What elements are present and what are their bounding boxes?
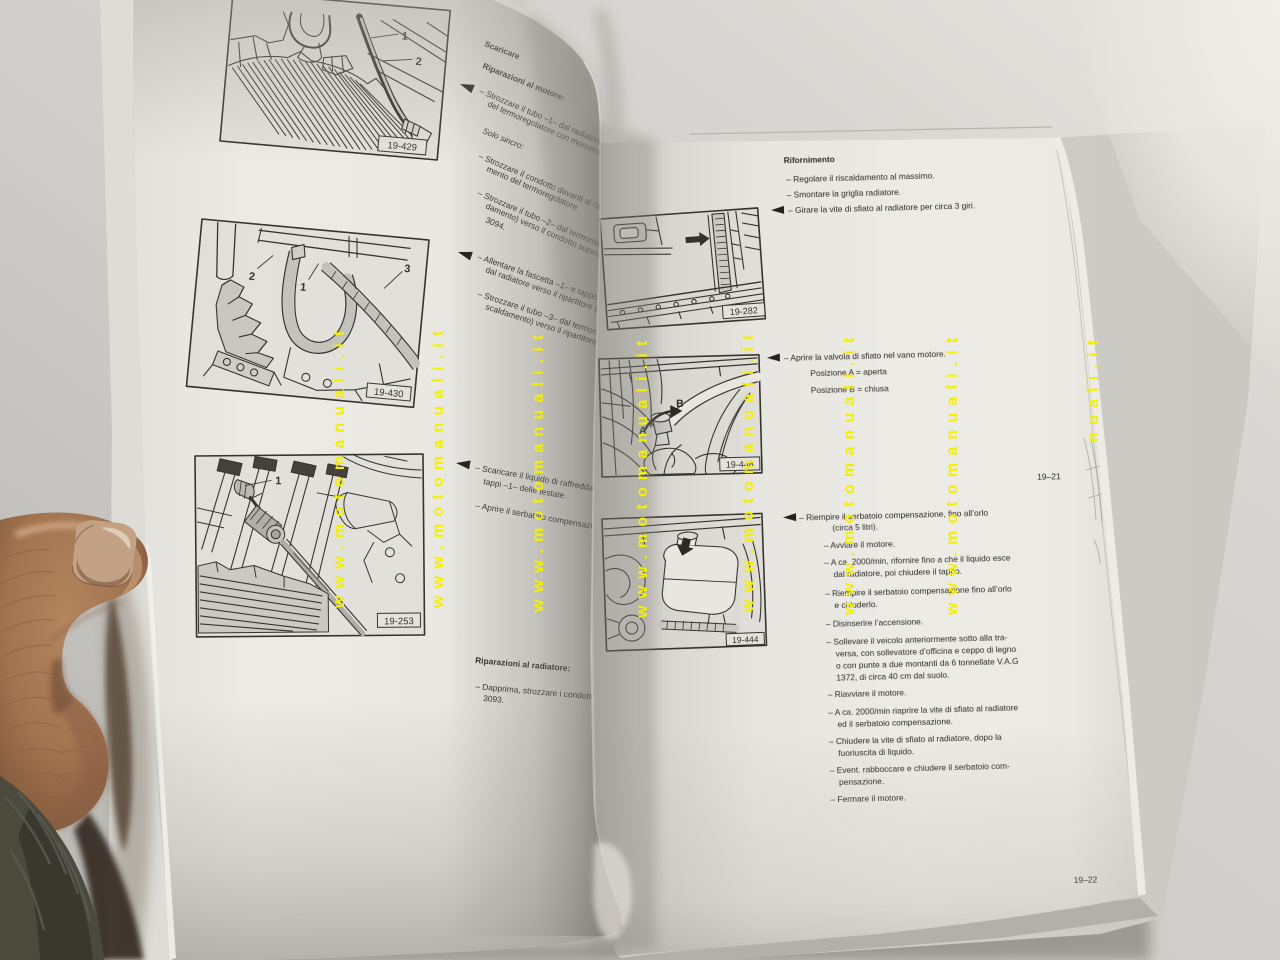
svg-text:www.motomanuali.it: www.motomanuali.it (430, 323, 447, 609)
svg-text:Rifornimento: Rifornimento (784, 155, 835, 165)
svg-text:www.motomanuali.it: www.motomanuali.it (740, 327, 757, 613)
svg-text:19-444: 19-444 (732, 634, 759, 645)
svg-text:www.motomanuali.it: www.motomanuali.it (944, 330, 961, 616)
svg-text:www.motomanuali.it: www.motomanuali.it (331, 323, 348, 609)
svg-text:2: 2 (248, 271, 255, 284)
svg-text:B: B (676, 398, 684, 410)
svg-text:www.motomanuali.it: www.motomanuali.it (530, 327, 547, 613)
svg-text:www.motomanuali.it: www.motomanuali.it (634, 333, 651, 619)
svg-text:nuali.it: nuali.it (1085, 333, 1102, 442)
svg-text:www.motomanuali.it: www.motomanuali.it (841, 330, 858, 616)
svg-text:19–21: 19–21 (1037, 471, 1061, 482)
svg-text:19-253: 19-253 (384, 616, 414, 627)
svg-text:– Riavviare il motore.: – Riavviare il motore. (828, 687, 907, 699)
svg-text:1: 1 (300, 281, 307, 294)
svg-text:1: 1 (275, 475, 281, 487)
svg-text:19-282: 19-282 (729, 305, 758, 317)
svg-text:– Avviare il motore.: – Avviare il motore. (824, 539, 895, 551)
svg-text:3: 3 (404, 263, 411, 276)
